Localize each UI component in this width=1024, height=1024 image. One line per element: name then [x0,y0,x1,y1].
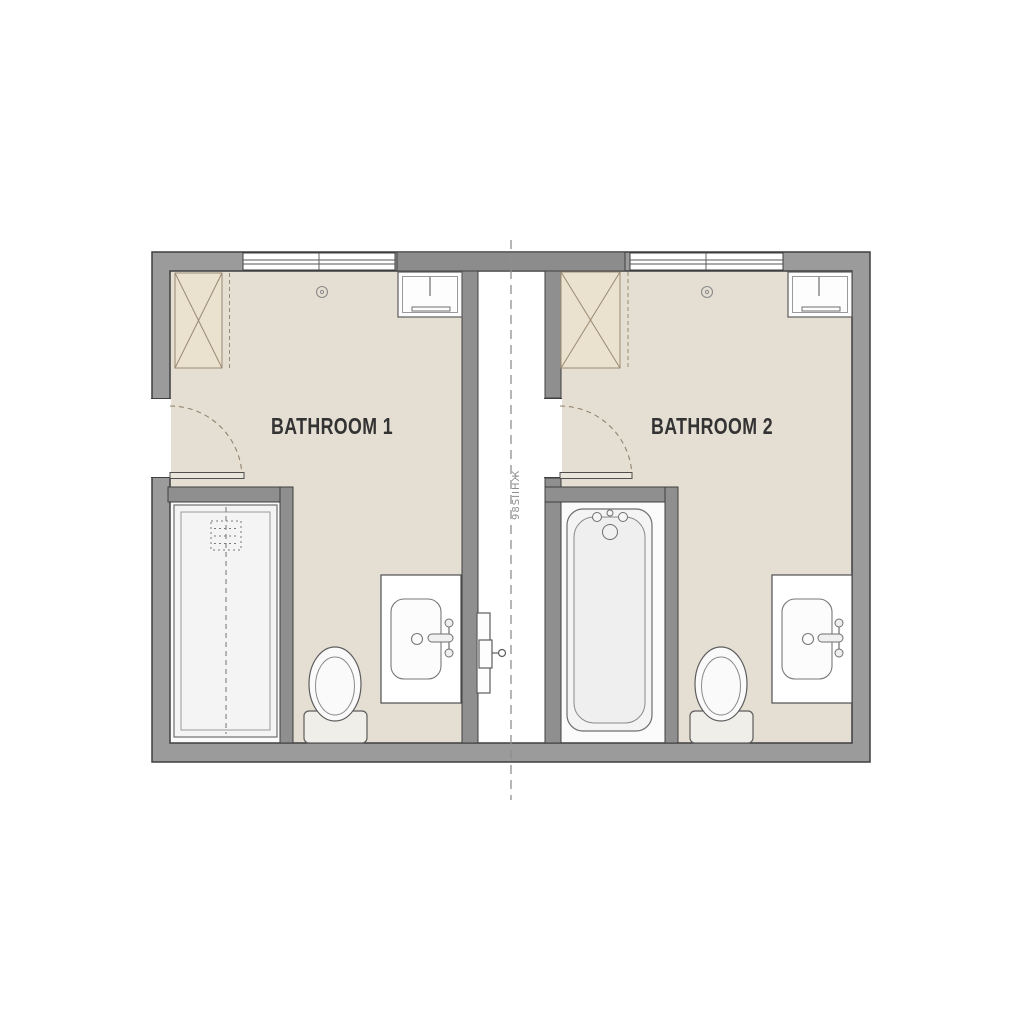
bathtub [567,509,652,731]
faucet-handle [835,619,843,627]
closet-bathroom-1 [175,273,230,368]
door-opening-2 [544,398,562,478]
tub-alcove-top-wall [545,487,678,502]
sink-vanity-bathroom-2 [772,575,852,703]
window-2 [630,253,783,270]
bathtub-tap-handle [593,513,602,522]
door-opening-1 [151,398,171,478]
duct-door-panel-inner [479,640,492,668]
window-frame [630,253,783,270]
shower-tray [174,505,277,737]
shower-alcove-top-wall [168,487,293,502]
toilet-bowl [695,647,747,721]
centerline-label: 98SIIHЖ [511,470,522,520]
tub-alcove-right-wall [665,487,678,743]
bathtub-basin [574,517,645,723]
room-label-bathroom-2: BATHROOM 2 [651,413,773,439]
window-1 [243,253,395,270]
faucet-spout [428,634,453,642]
cabinet-box [788,272,852,317]
floor-plan: BATHROOM 1 BATHROOM 2 98SIIHЖ [0,0,1024,1024]
shower [174,505,277,737]
door-gap [151,398,171,478]
closet-bathroom-2 [561,272,628,368]
faucet-handle [445,619,453,627]
shower-alcove-right-wall [280,487,293,743]
sink-vanity-bathroom-1 [381,575,461,703]
wall-cabinet-bathroom-2 [788,272,852,317]
wall-cabinet-bathroom-1 [398,272,462,317]
bathtub-spout [607,510,613,516]
corridor-left-wall [462,271,478,743]
door-leaf [170,473,244,479]
door-leaf [560,473,632,479]
floor-plan-canvas: BATHROOM 1 BATHROOM 2 98SIIHЖ [0,0,1024,1024]
corridor-right-wall-upper [545,271,561,398]
toilet-bowl [309,647,361,721]
faucet-spout [818,634,843,642]
bathtub-drain [603,525,618,540]
corridor-right-wall-lower [545,478,561,743]
room-label-bathroom-1: BATHROOM 1 [271,413,393,439]
faucet-handle [835,649,843,657]
faucet-handle [445,649,453,657]
bathtub-tap-handle [619,513,628,522]
door-gap [544,398,562,478]
